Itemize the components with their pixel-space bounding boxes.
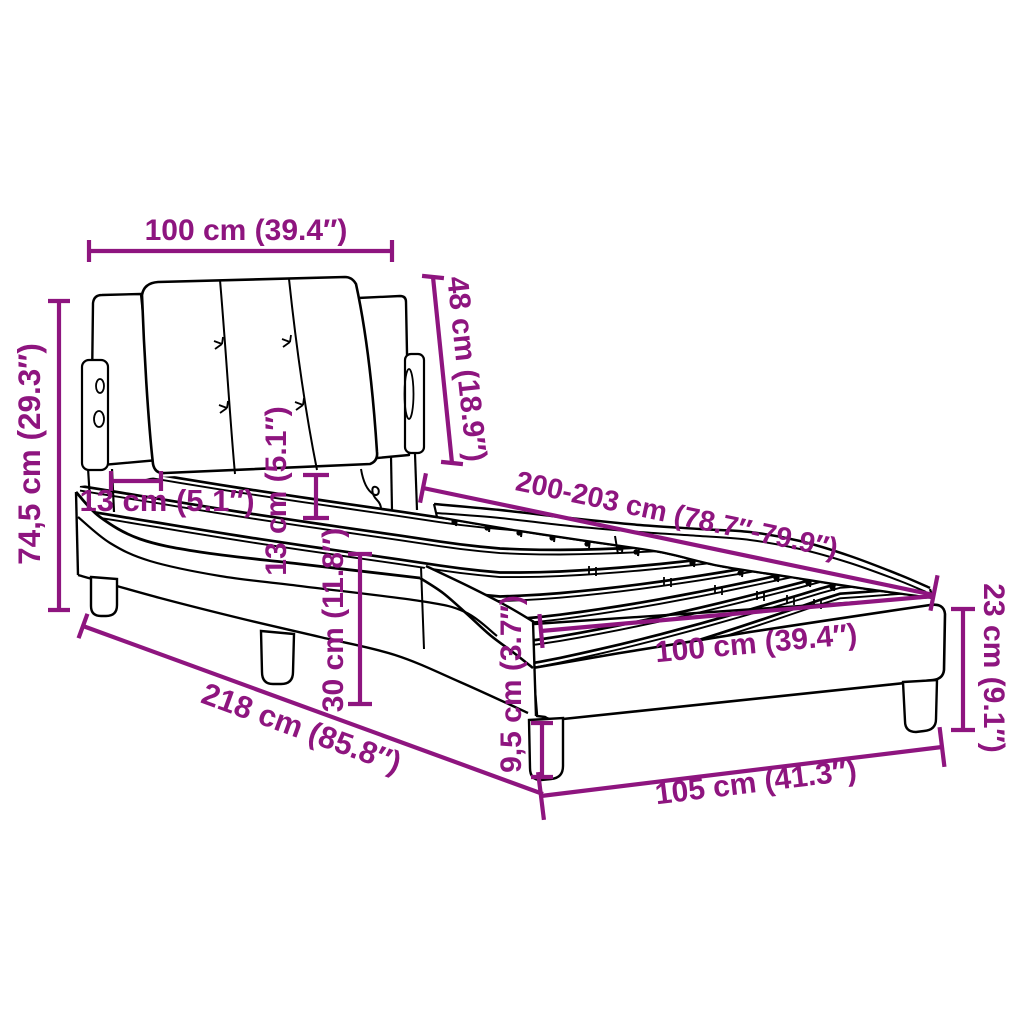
svg-text:13 cm (5.1″): 13 cm (5.1″)	[79, 483, 254, 518]
svg-text:74,5 cm (29.3″): 74,5 cm (29.3″)	[11, 343, 47, 565]
svg-text:9,5 cm (3.7″): 9,5 cm (3.7″)	[495, 595, 528, 773]
svg-text:13 cm (5.1″): 13 cm (5.1″)	[260, 406, 293, 575]
svg-text:30 cm (11.8″): 30 cm (11.8″)	[317, 528, 350, 712]
svg-text:23 cm (9.1″): 23 cm (9.1″)	[977, 583, 1010, 752]
svg-text:100 cm (39.4″): 100 cm (39.4″)	[145, 214, 348, 247]
